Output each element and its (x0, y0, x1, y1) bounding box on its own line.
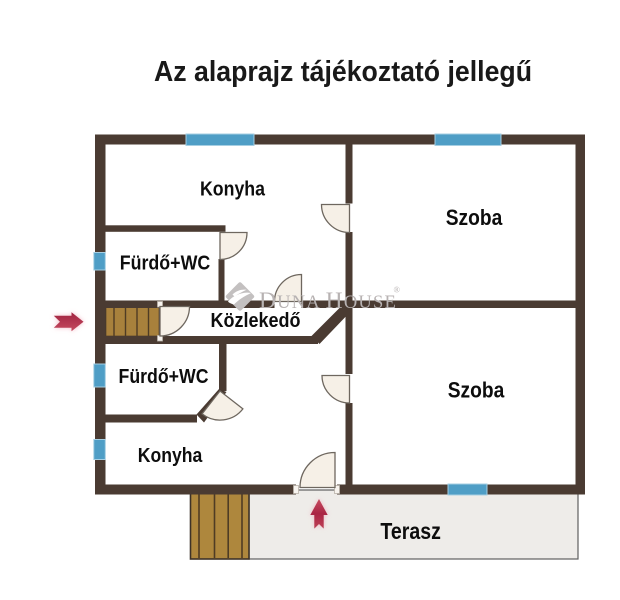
svg-text:®: ® (394, 285, 401, 295)
svg-text:Konyha: Konyha (138, 445, 203, 467)
svg-text:Közlekedő: Közlekedő (211, 310, 301, 332)
svg-text:Szoba: Szoba (448, 378, 505, 403)
svg-text:Konyha: Konyha (200, 179, 266, 201)
svg-text:Terasz: Terasz (380, 518, 441, 544)
svg-text:Fürdő+WC: Fürdő+WC (119, 365, 209, 388)
svg-text:Az alaprajz tájékoztató jelleg: Az alaprajz tájékoztató jellegű (154, 56, 532, 88)
svg-text:Fürdő+WC: Fürdő+WC (120, 252, 211, 275)
svg-text:Szoba: Szoba (446, 205, 503, 230)
